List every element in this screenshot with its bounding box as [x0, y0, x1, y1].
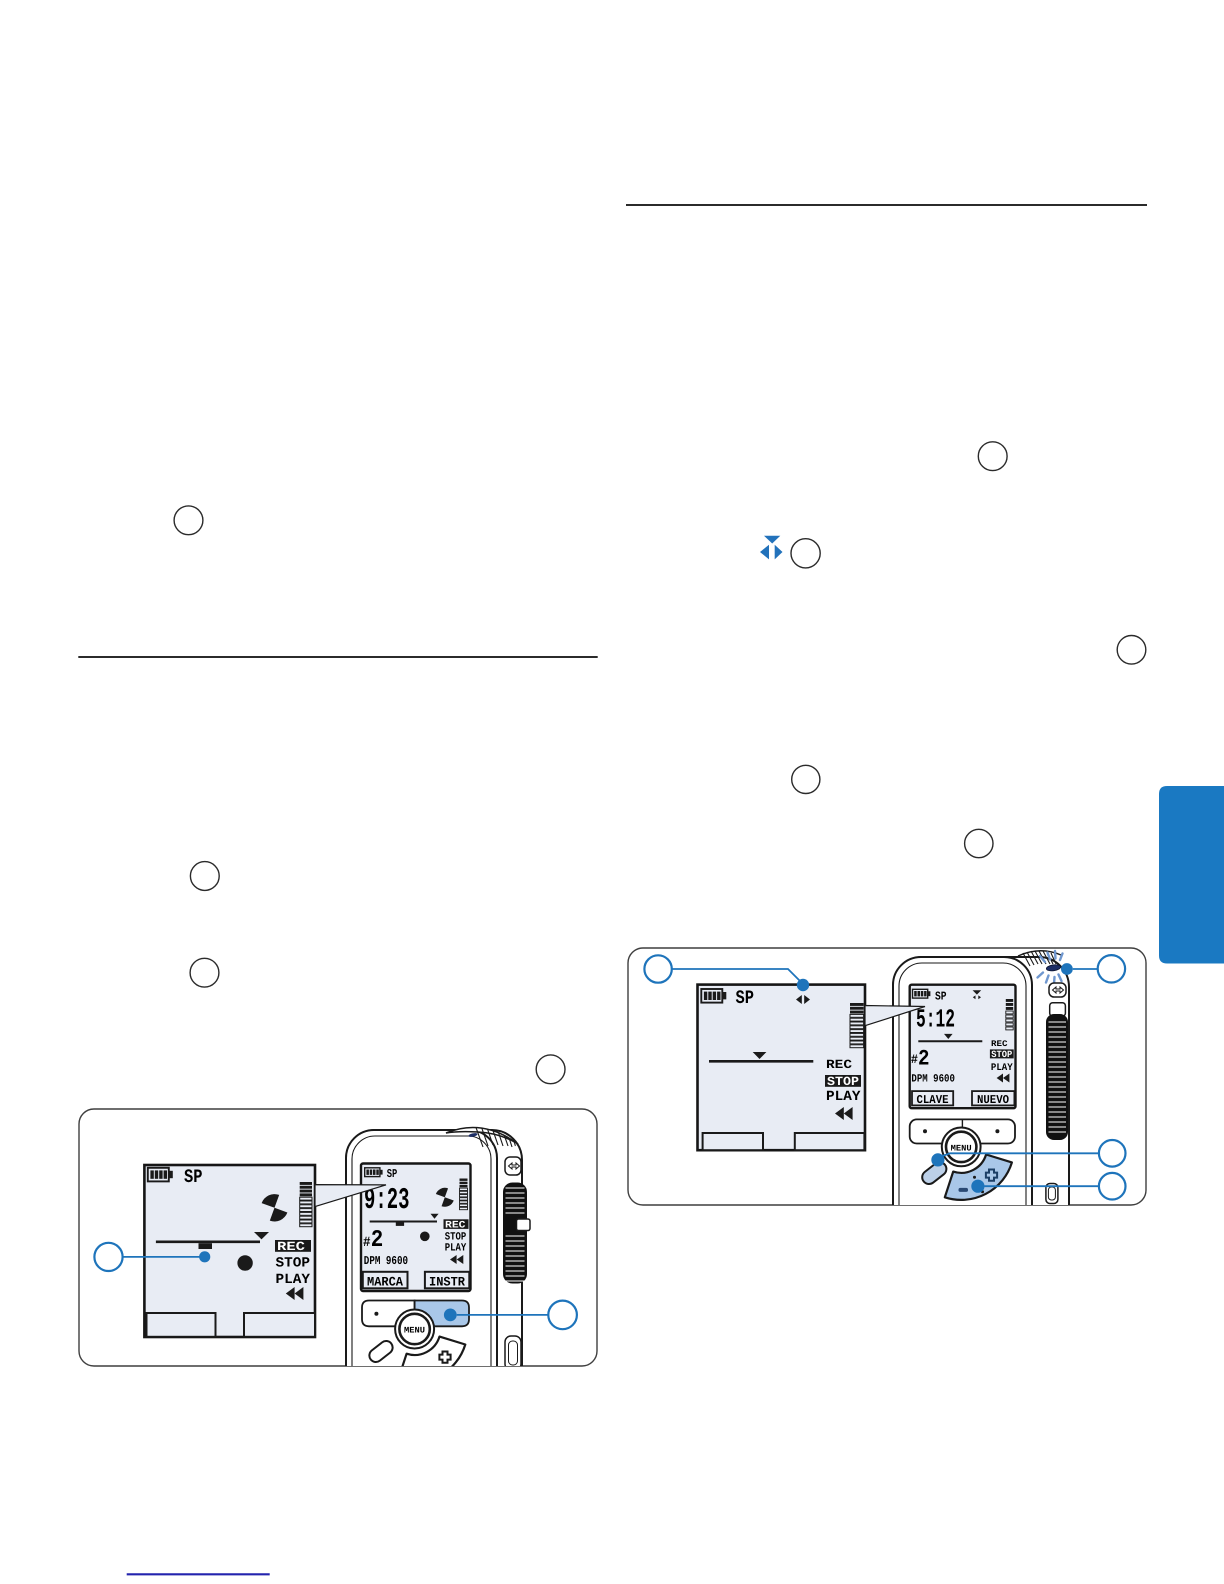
- svg-text:REC: REC: [277, 1240, 306, 1254]
- svg-text:STOP: STOP: [827, 1075, 859, 1089]
- svg-text:REC: REC: [826, 1058, 853, 1072]
- svg-text:SP: SP: [387, 1167, 398, 1181]
- svg-text:SP: SP: [184, 1166, 203, 1188]
- svg-text:STOP: STOP: [991, 1049, 1012, 1060]
- svg-text:5:12: 5:12: [916, 1005, 955, 1035]
- svg-text:PLAY: PLAY: [991, 1063, 1013, 1074]
- svg-text:PLAY: PLAY: [276, 1272, 311, 1288]
- svg-text:REC: REC: [991, 1039, 1008, 1049]
- svg-text:MENU: MENU: [404, 1325, 425, 1335]
- svg-text:MARCA: MARCA: [367, 1274, 403, 1289]
- svg-text:REC: REC: [445, 1220, 466, 1231]
- svg-text:STOP: STOP: [276, 1255, 311, 1271]
- svg-text:MENU: MENU: [951, 1143, 972, 1153]
- svg-text:SP: SP: [935, 990, 947, 1004]
- svg-text:SP: SP: [736, 987, 755, 1009]
- svg-text:#: #: [363, 1235, 371, 1251]
- svg-text:CLAVE: CLAVE: [917, 1093, 949, 1107]
- svg-text:PLAY: PLAY: [445, 1242, 467, 1254]
- svg-text:2: 2: [918, 1047, 930, 1072]
- svg-text:DPM 9600: DPM 9600: [364, 1254, 408, 1268]
- svg-text:NUEVO: NUEVO: [977, 1093, 1009, 1107]
- svg-text:INSTR: INSTR: [429, 1274, 465, 1289]
- svg-text:DPM 9600: DPM 9600: [911, 1073, 955, 1085]
- svg-text:PLAY: PLAY: [826, 1089, 861, 1105]
- svg-text:2: 2: [371, 1227, 384, 1254]
- svg-text:#: #: [911, 1052, 918, 1067]
